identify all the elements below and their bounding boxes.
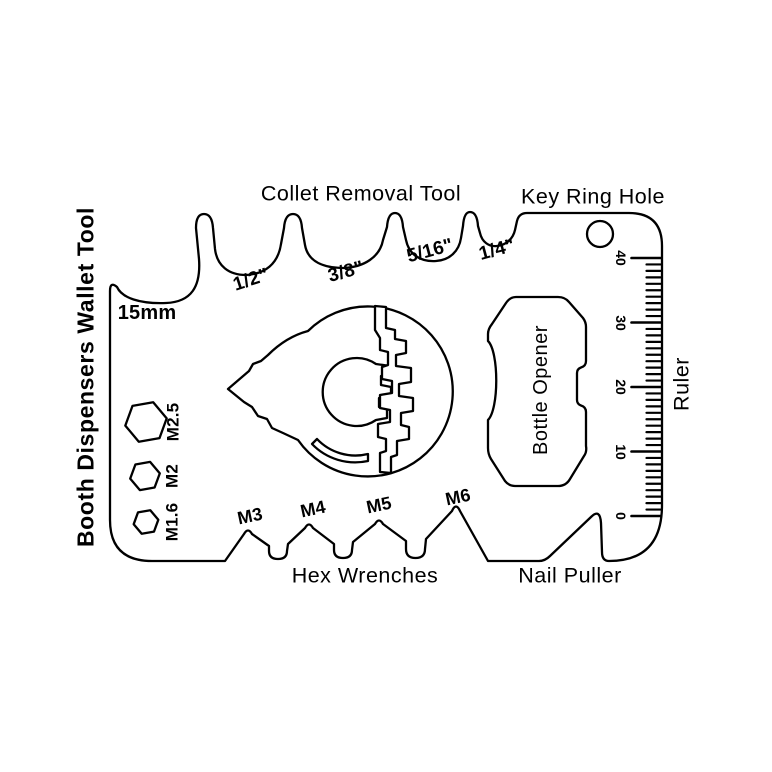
hex-wrench-label-m4: M4 [299, 498, 328, 521]
key-ring-hole-cutout [587, 221, 613, 247]
hex-wrench-label-m5: M5 [365, 494, 394, 517]
hex-wrenches-title: Hex Wrenches [292, 565, 439, 587]
hex-wrench-label-m3: M3 [236, 505, 265, 528]
ruler-number: 10 [614, 444, 628, 460]
hex-hole-label-m2_5: M2.5 [165, 403, 182, 442]
nail-puller-title: Nail Puller [518, 565, 621, 587]
collet-removal-title: Collet Removal Tool [261, 183, 461, 205]
hex-hole-label-m2: M2 [164, 464, 181, 488]
ruler-label: Ruler [671, 357, 693, 411]
bottle-opener-label: Bottle Opener [531, 325, 551, 455]
hex-hole-m1_6 [134, 510, 159, 533]
key-ring-hole-title: Key Ring Hole [521, 186, 665, 208]
hex-wrench-label-m6: M6 [444, 486, 473, 509]
hex-hole-label-m1_6: M1.6 [164, 503, 181, 542]
ruler-number: 0 [614, 512, 628, 520]
ruler-number: 40 [614, 250, 628, 266]
multitool-inner-hole [323, 358, 391, 426]
ruler-number: 30 [614, 315, 628, 331]
collet-size-15mm: 15mm [118, 303, 177, 323]
stage: Booth Dispensers Wallet Tool Collet Remo… [0, 0, 772, 772]
ruler-number: 20 [614, 379, 628, 395]
side-title: Booth Dispensers Wallet Tool [75, 207, 98, 547]
tool-card-drawing [0, 0, 772, 772]
